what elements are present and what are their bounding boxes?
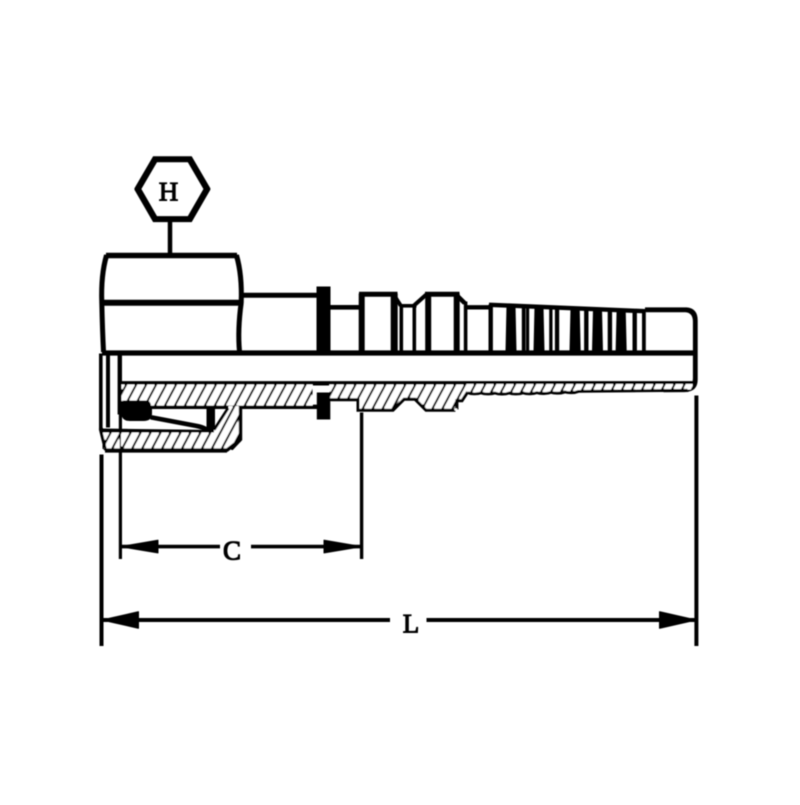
svg-text:H: H: [159, 176, 179, 206]
svg-text:L: L: [403, 609, 420, 639]
svg-text:C: C: [223, 536, 241, 566]
